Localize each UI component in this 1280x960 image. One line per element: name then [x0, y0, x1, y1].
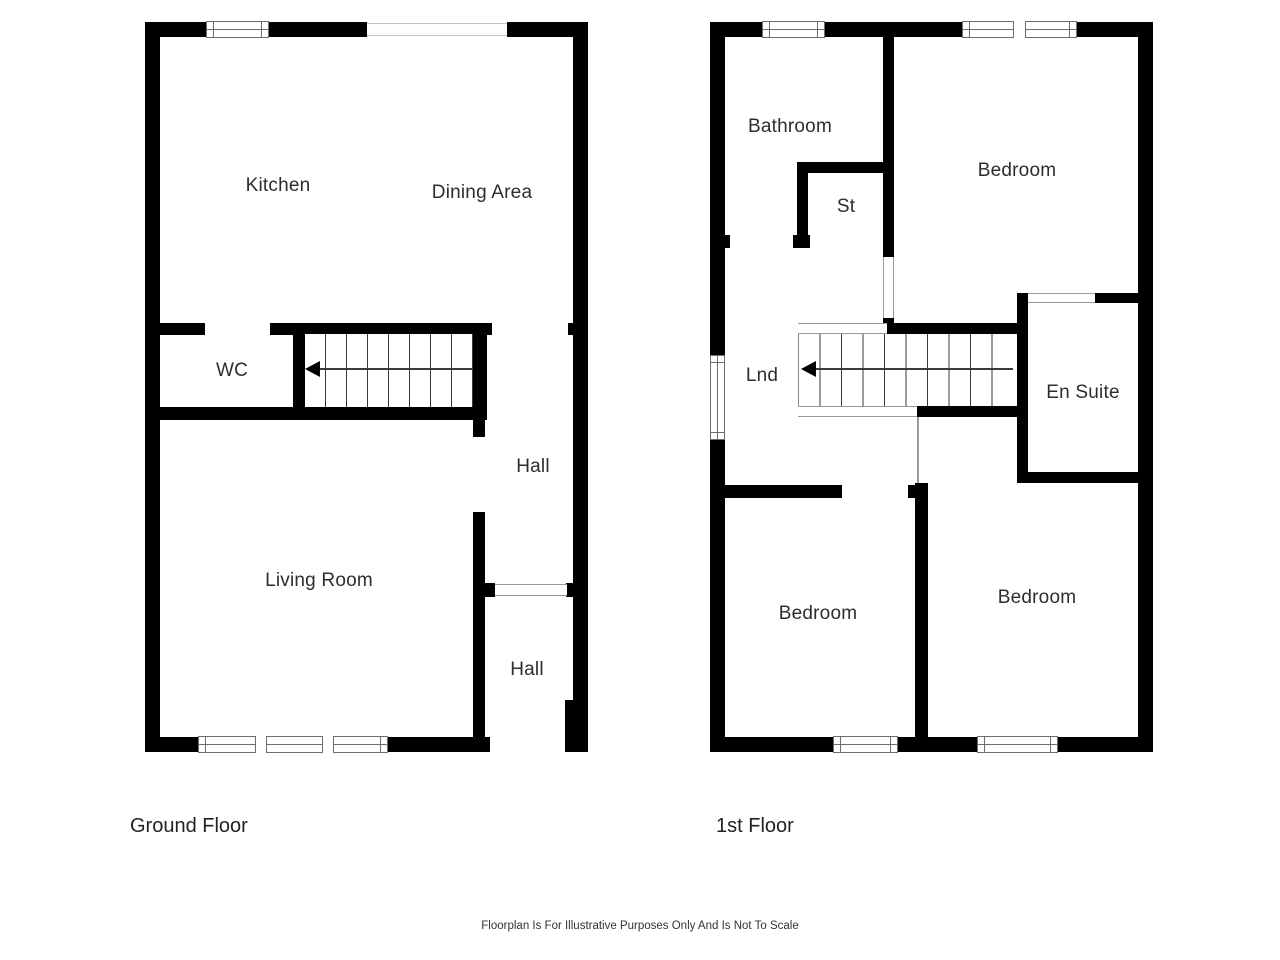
- wall: [565, 700, 588, 752]
- wall: [898, 737, 977, 752]
- wall: [1138, 22, 1153, 752]
- disclaimer-text: Floorplan Is For Illustrative Purposes O…: [481, 920, 798, 932]
- room-label-hall-upper: Hall: [516, 456, 550, 478]
- room-label-bedroom-right: Bedroom: [998, 587, 1077, 609]
- room-label-hall-lower: Hall: [510, 659, 544, 681]
- room-label-landing: Lnd: [746, 365, 778, 387]
- stair-arrow-icon: [801, 361, 816, 377]
- window: [198, 736, 388, 753]
- wall: [797, 162, 894, 173]
- wall: [793, 235, 810, 248]
- wall: [887, 323, 1017, 334]
- wall: [145, 22, 208, 37]
- wall: [473, 512, 485, 737]
- stair-rail: [798, 406, 917, 417]
- wall: [1017, 472, 1138, 483]
- room-label-bedroom-top: Bedroom: [978, 160, 1057, 182]
- window: [367, 23, 507, 36]
- wall: [145, 737, 198, 752]
- room-label-living-room: Living Room: [265, 570, 373, 592]
- floorplan-canvas: Kitchen Dining Area WC Hall Living Room …: [0, 0, 1280, 960]
- wall: [915, 483, 928, 737]
- staircase: [305, 334, 473, 407]
- wall: [160, 407, 487, 420]
- wall: [825, 22, 962, 37]
- wall: [160, 323, 205, 335]
- wall: [293, 334, 305, 407]
- wall: [388, 737, 490, 752]
- door-opening: [1028, 293, 1095, 303]
- window: [977, 736, 1058, 753]
- wall: [473, 583, 495, 597]
- wall: [568, 323, 580, 335]
- wall: [145, 22, 160, 752]
- floor-caption-ground: Ground Floor: [130, 815, 248, 838]
- window-mullion: [255, 736, 267, 753]
- room-label-dining-area: Dining Area: [432, 182, 532, 204]
- wall: [710, 22, 762, 37]
- window: [762, 21, 825, 38]
- wall: [1095, 293, 1138, 303]
- room-label-kitchen: Kitchen: [246, 175, 311, 197]
- wall: [1017, 293, 1028, 483]
- wall: [473, 420, 485, 437]
- stair-rail: [798, 323, 887, 334]
- window-mullion: [1013, 21, 1026, 38]
- wall: [268, 22, 367, 37]
- room-label-bedroom-left: Bedroom: [779, 603, 858, 625]
- floor-caption-first: 1st Floor: [716, 815, 794, 838]
- door-opening: [495, 584, 567, 596]
- wall: [710, 485, 842, 498]
- window: [962, 21, 1077, 38]
- wall: [473, 334, 487, 407]
- window-mullion: [322, 736, 334, 753]
- stair-direction-line: [317, 368, 473, 370]
- room-label-bathroom: Bathroom: [748, 116, 832, 138]
- wall: [566, 583, 578, 597]
- window: [710, 355, 725, 440]
- wall: [573, 22, 588, 752]
- door-opening: [917, 417, 919, 483]
- room-label-wc: WC: [216, 360, 248, 382]
- wall: [1058, 737, 1153, 752]
- wall: [883, 37, 894, 257]
- wall: [710, 737, 833, 752]
- window: [833, 736, 898, 753]
- door-opening: [883, 257, 894, 318]
- staircase: [798, 334, 1013, 406]
- room-label-storage: St: [837, 196, 855, 218]
- stair-treads: [799, 334, 1013, 406]
- stair-direction-line: [813, 368, 1013, 370]
- wall: [710, 235, 730, 248]
- wall: [917, 406, 1017, 417]
- stair-arrow-icon: [305, 361, 320, 377]
- window: [206, 21, 269, 38]
- room-label-en-suite: En Suite: [1046, 382, 1119, 404]
- stair-treads: [305, 334, 473, 407]
